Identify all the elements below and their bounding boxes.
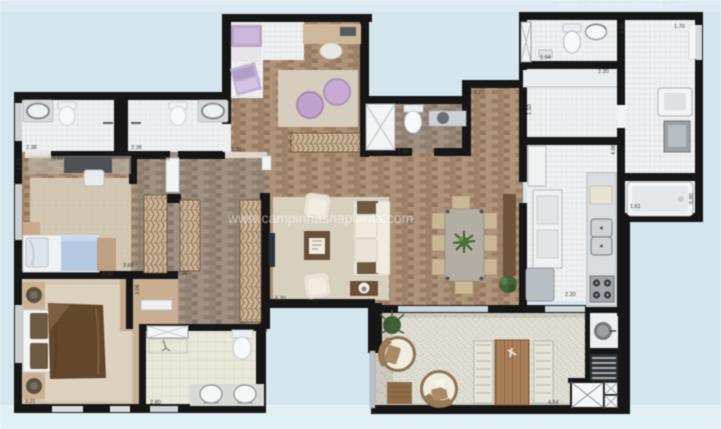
svg-text:www.campinasnaplanta.com: www.campinasnaplanta.com: [557, 0, 685, 11]
svg-text:2.20: 2.20: [598, 69, 609, 75]
svg-text:2.38: 2.38: [131, 145, 142, 151]
svg-text:2.38: 2.38: [102, 272, 113, 278]
svg-text:1.65: 1.65: [398, 149, 409, 155]
svg-text:1.20: 1.20: [474, 90, 485, 96]
svg-text:6.20: 6.20: [275, 296, 286, 302]
svg-text:4.64: 4.64: [548, 400, 559, 406]
svg-text:4.06: 4.06: [611, 144, 617, 155]
svg-text:1.50: 1.50: [160, 156, 170, 162]
svg-text:1.61: 1.61: [630, 204, 641, 210]
svg-text:1.94: 1.94: [540, 55, 551, 61]
svg-text:2.36: 2.36: [177, 271, 188, 277]
svg-text:3.66: 3.66: [123, 263, 134, 269]
svg-text:1.50: 1.50: [527, 104, 533, 115]
svg-text:2.80: 2.80: [150, 400, 161, 406]
svg-text:3.30: 3.30: [231, 147, 242, 153]
svg-text:2.20: 2.20: [565, 292, 576, 298]
svg-text:0.80: 0.80: [689, 193, 695, 204]
svg-text:3.06: 3.06: [135, 284, 141, 295]
svg-text:1.70: 1.70: [674, 24, 685, 30]
svg-text:3.95: 3.95: [620, 23, 626, 34]
svg-text:1.50: 1.50: [16, 159, 22, 170]
svg-text:2.41: 2.41: [384, 319, 390, 330]
svg-text:www.campinhasnaplanta.com: www.campinhasnaplanta.com: [227, 210, 413, 226]
svg-text:1.50: 1.50: [53, 156, 63, 162]
svg-text:3.21: 3.21: [25, 399, 36, 405]
svg-text:2.38: 2.38: [26, 145, 37, 151]
